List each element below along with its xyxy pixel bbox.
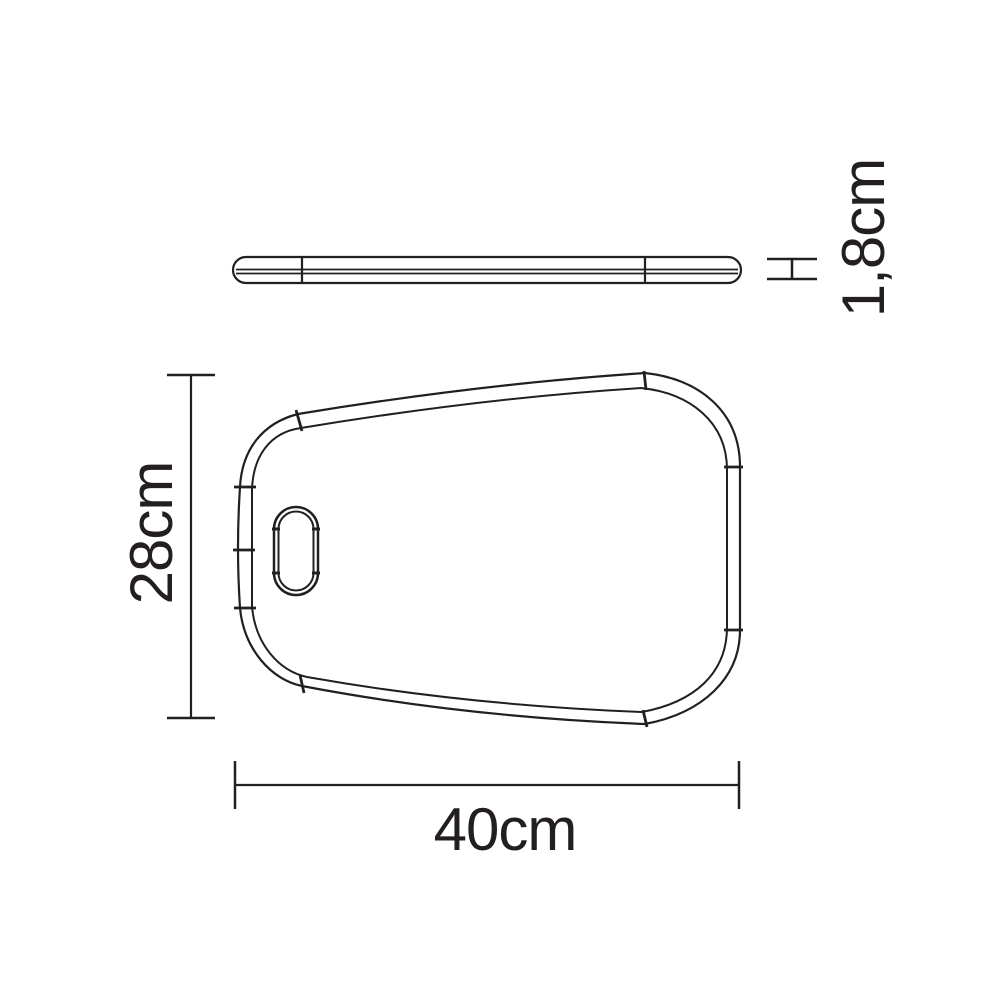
thickness-dimension-label: 1,8cm: [832, 108, 896, 368]
drawing-strokes: [167, 257, 817, 809]
width-dimension-label: 40cm: [375, 798, 635, 862]
dimension-drawing: 40cm 28cm 1,8cm: [0, 0, 1000, 1000]
rim-tick-bottom-left: [300, 675, 304, 693]
board-plan-view: [233, 371, 743, 727]
height-dimension-label: 28cm: [120, 403, 184, 663]
thickness-dimension: [767, 259, 817, 279]
board-side-view: [233, 257, 741, 283]
handle-inner-outline: [279, 512, 314, 591]
rim-tick-top-right: [644, 371, 646, 390]
board-inner-outline: [252, 388, 727, 712]
